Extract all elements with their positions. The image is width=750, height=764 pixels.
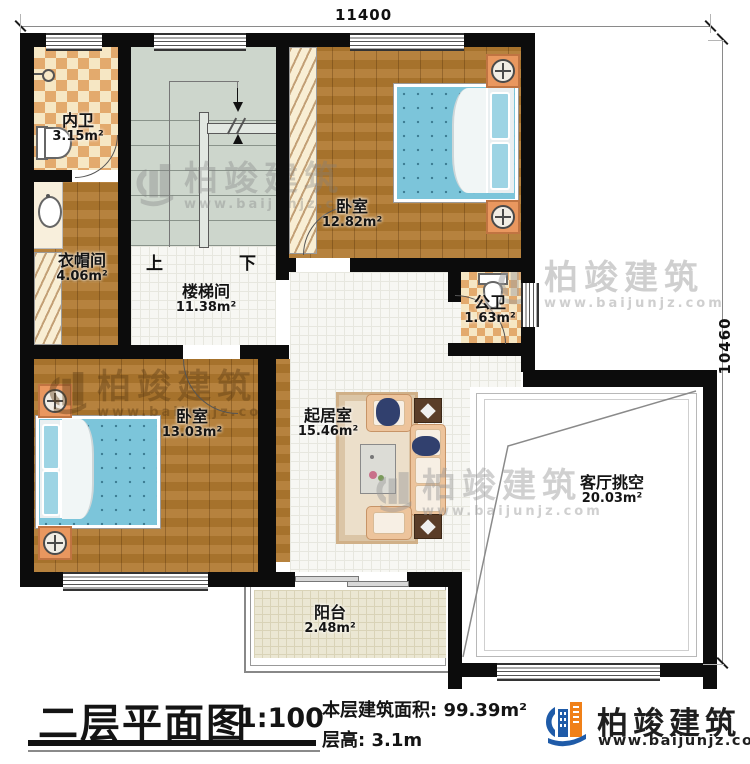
floor-height-line: 层高: 3.1m [322, 726, 422, 752]
plan-scale: 1:100 [238, 703, 324, 734]
room-label-cloakroom: 衣帽间 4.06m² [56, 252, 107, 284]
title-underline-thick [28, 740, 316, 746]
floor-area-label: 本层建筑面积: [322, 700, 437, 721]
floor-plan-canvas: 上 下 柏竣建筑www.baijunjz.com [0, 0, 750, 764]
room-label-void: 客厅挑空 20.03m² [580, 474, 644, 506]
room-label-bedroom2: 卧室 13.03m² [162, 408, 222, 440]
void-boundary-lines [0, 0, 750, 764]
dimension-line-top [20, 26, 710, 27]
brand-logo-icon [542, 699, 592, 749]
extension-line [703, 664, 724, 665]
dimension-top-value: 11400 [335, 6, 392, 24]
extension-line [20, 14, 21, 33]
title-underline-thin [28, 750, 320, 752]
room-label-stairwell: 楼梯间 11.38m² [176, 283, 236, 315]
room-label-public-bath: 公卫 1.63m² [464, 294, 515, 326]
room-label-inner-bath: 内卫 3.15m² [52, 112, 103, 144]
floor-area-value: 99.39m² [443, 700, 527, 721]
room-label-bedroom1: 卧室 12.82m² [322, 198, 382, 230]
floor-height-value: 3.1m [371, 730, 422, 751]
brand-website: www.baijunjz.com [598, 733, 750, 749]
floor-height-label: 层高: [322, 730, 365, 751]
room-label-living: 起居室 15.46m² [298, 407, 358, 439]
dimension-right-value: 10460 [716, 316, 734, 376]
floor-area-line: 本层建筑面积: 99.39m² [322, 696, 527, 722]
room-label-balcony: 阳台 2.48m² [304, 604, 355, 636]
extension-line [708, 40, 724, 41]
extension-line [710, 14, 711, 33]
